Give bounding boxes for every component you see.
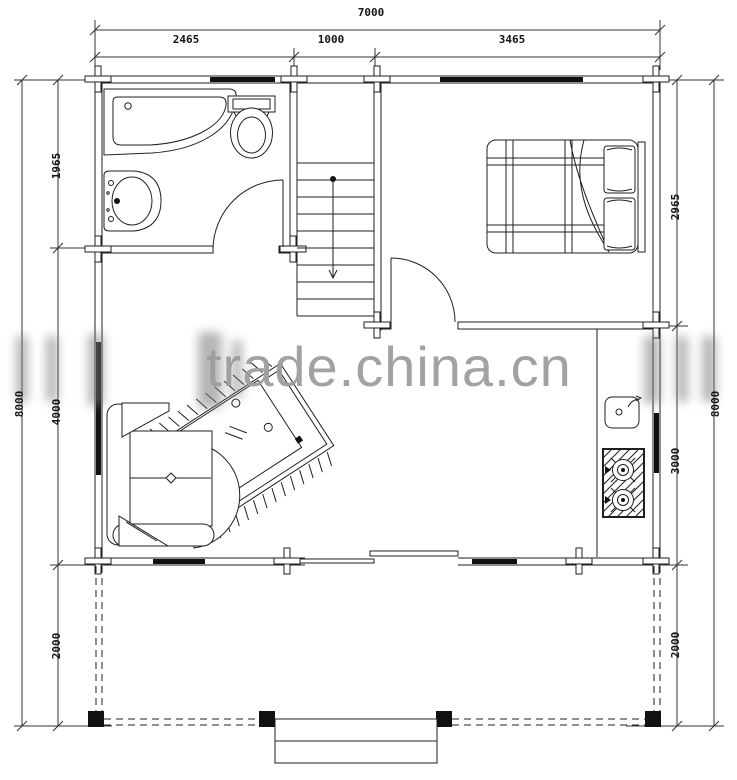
dim-left-porch: 2000 — [51, 624, 63, 668]
toilet-icon — [228, 96, 275, 158]
wall-left — [95, 76, 102, 565]
bathroom-door-swing — [213, 180, 283, 249]
sliding-door — [300, 551, 458, 567]
wall-bathroom-bottom — [95, 246, 213, 253]
wall-bedroom-bottom-b — [458, 322, 653, 329]
watermark-smudge — [88, 334, 104, 406]
kitchen — [597, 329, 644, 557]
headboard — [638, 142, 645, 252]
watermark-smudge — [644, 336, 660, 404]
dim-top-total: 7000 — [346, 7, 396, 19]
window-right-wall — [654, 413, 659, 473]
window-bottom-1 — [153, 559, 205, 564]
corner-bathtub-icon — [104, 89, 236, 155]
staircase — [297, 163, 374, 316]
porch — [88, 566, 661, 763]
window-bedroom — [440, 77, 583, 82]
dim-top-seg-1: 2465 — [161, 34, 211, 46]
watermark-smudge — [676, 336, 688, 402]
watermark: trade.china.cn — [206, 334, 572, 399]
dim-right-lower: 3000 — [670, 439, 682, 483]
wall-stair-left — [290, 83, 297, 253]
double-bed-icon — [487, 140, 645, 253]
floor-plan-canvas: trade.china.cn 7000 2465 1000 3465 1965 … — [0, 0, 737, 780]
washbasin-icon — [104, 171, 161, 231]
bathroom — [104, 89, 283, 249]
wall-stair-right — [374, 83, 381, 330]
dim-left-total: 8000 — [14, 382, 26, 426]
window-bathroom — [210, 77, 275, 82]
dim-top-seg-3: 3465 — [487, 34, 537, 46]
stair-direction-arrow — [329, 176, 337, 278]
pillow-icon — [604, 198, 635, 250]
stove-icon — [603, 449, 644, 517]
dim-left-lower: 4000 — [51, 390, 63, 434]
dim-top-seg-2: 1000 — [306, 34, 356, 46]
pillow-icon — [604, 146, 635, 193]
bedroom-door-swing — [391, 258, 455, 322]
window-bottom-2 — [472, 559, 517, 564]
porch-outline — [96, 566, 660, 725]
burner — [611, 488, 635, 512]
dim-right-porch: 2000 — [670, 623, 682, 667]
dim-right-upper: 2965 — [670, 185, 682, 229]
burner — [611, 458, 635, 482]
bedroom — [391, 140, 645, 322]
entry-steps — [275, 719, 437, 763]
kitchen-sink-icon — [605, 396, 641, 428]
dim-right-total: 8000 — [710, 382, 722, 426]
dim-left-upper: 1965 — [51, 144, 63, 188]
